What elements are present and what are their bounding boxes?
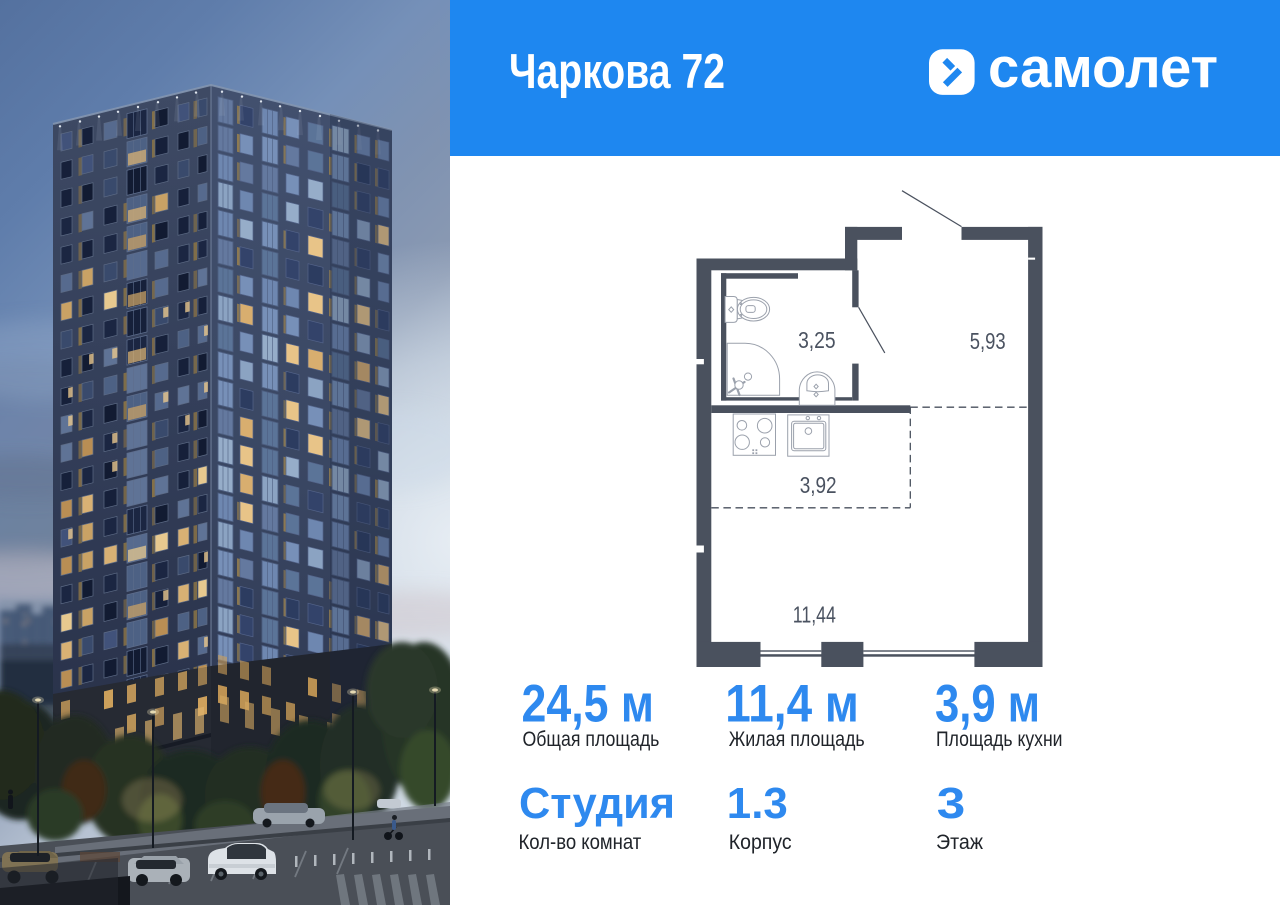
svg-text:Общая площадь: Общая площадь [523,728,660,751]
svg-text:самолет: самолет [988,36,1218,100]
svg-text:Чаркова 72: Чаркова 72 [509,45,725,99]
svg-text:5,93: 5,93 [970,328,1006,354]
svg-text:Площадь кухни: Площадь кухни [936,728,1063,751]
svg-text:11,44: 11,44 [793,602,836,628]
svg-text:11,4 м: 11,4 м [725,675,859,734]
svg-text:Кол-во комнат: Кол-во комнат [519,831,642,854]
svg-text:3,9 м: 3,9 м [935,675,1040,734]
svg-text:24,5 м: 24,5 м [522,675,655,734]
svg-text:Корпус: Корпус [729,831,792,854]
svg-text:1.3: 1.3 [727,780,788,828]
svg-text:Жилая площадь: Жилая площадь [729,728,865,751]
svg-text:Студия: Студия [519,780,675,828]
svg-text:Этаж: Этаж [936,831,983,854]
svg-text:3: 3 [937,780,966,828]
svg-text:3,25: 3,25 [798,327,836,353]
svg-text:3,92: 3,92 [800,472,837,498]
